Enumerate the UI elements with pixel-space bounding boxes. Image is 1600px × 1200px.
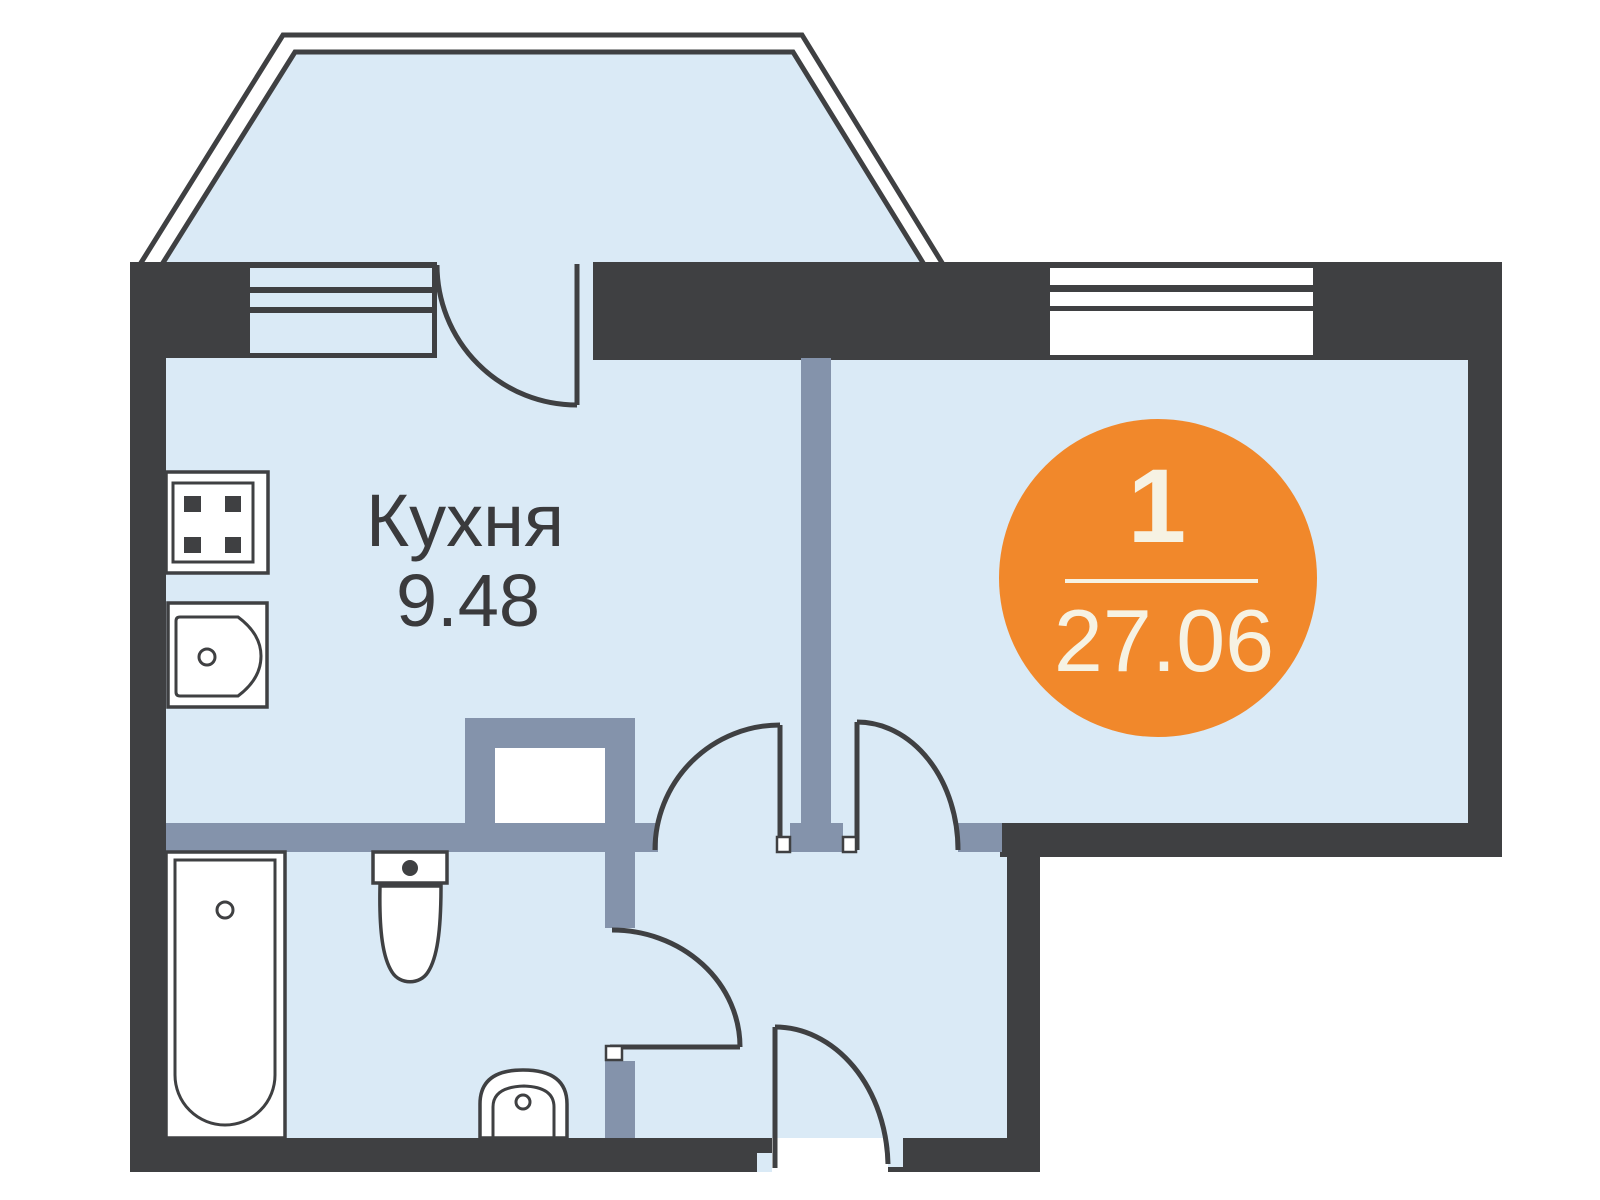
stove-burner-2 [225,496,241,512]
wall-top-left-segment [130,262,245,358]
badge-room-count: 1 [1128,448,1186,565]
living-window-pane-outer [1050,268,1313,285]
bay-window-glazing [161,52,925,266]
living-hall-door-stop [843,837,856,852]
stove-burner-3 [184,537,201,553]
bathtub [166,852,285,1138]
partition-bathroom-hall-lower [605,1061,635,1138]
toilet-flush-button [402,860,418,876]
kitchen-area-text: 9.48 [396,559,540,642]
washbasin [480,1070,567,1138]
kitchen-hall-door-stop [777,837,790,852]
partition-kitchen-living [801,358,831,823]
badge-total-area: 27.06 [1054,591,1274,690]
apartment-badge: 1 27.06 [999,419,1317,737]
kitchen-window-sill [250,313,432,353]
living-window-pane-middle [1050,292,1313,306]
kitchen-sink [168,603,267,707]
floor-plan-drawing: Кухня 9.48 1 27.06 [0,0,1600,1200]
kitchen-name-text: Кухня [366,479,564,562]
kitchen-label: Кухня 9.48 [366,479,564,642]
wall-bottom-right-segment [888,1138,1040,1172]
bathtub-body [166,852,285,1138]
wall-left [130,262,166,1172]
toilet-bowl [380,886,441,982]
wall-bottom-left-segment [130,1138,772,1172]
vent-shaft-opening [495,748,605,823]
stove [166,472,268,573]
living-window-sill [1050,311,1313,355]
partition-center-pier [790,823,843,852]
stove-burner-1 [184,496,201,512]
stove-burner-4 [225,537,241,553]
partition-bathroom-hall-upper [605,852,635,928]
vent-shaft [465,718,635,852]
kitchen-window-pane-outer [250,268,432,287]
wall-living-bottom [1000,823,1502,857]
kitchen-window-pane-middle [250,293,432,307]
entry-jamb-notch-left [757,1153,772,1172]
bathroom-door-stop [606,1046,622,1060]
kitchen-sink-body [168,603,267,707]
living-room-window [1045,262,1318,360]
wall-hall-right [1007,823,1040,1172]
floor-plan-page: Кухня 9.48 1 27.06 [0,0,1600,1200]
wall-right [1468,262,1502,857]
partition-hall-band-right [958,823,1002,852]
kitchen-window [245,262,437,358]
bay-window [139,35,944,266]
wall-top-middle-segment [593,262,1045,360]
